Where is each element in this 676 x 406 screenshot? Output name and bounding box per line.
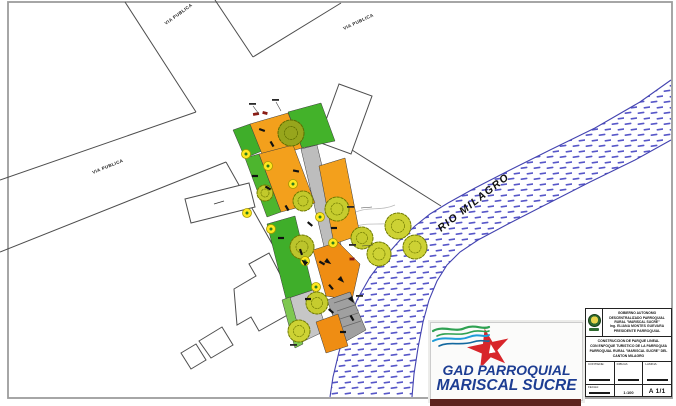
gad-emblem-cell (586, 309, 603, 336)
lamp-icon (264, 162, 273, 171)
tree-icon (288, 320, 310, 342)
scale-value: 1:100 (617, 390, 641, 395)
field-value-bar (618, 379, 639, 382)
project-line4: CANTON MILAGRO (586, 354, 671, 359)
field-lamina: LAMINA: (643, 362, 671, 385)
street-label-right: VIA PUBLICA (342, 12, 374, 31)
building-outline (181, 344, 206, 369)
street-label-left: VIA PUBLICA (92, 158, 125, 175)
field-contiene: CONTIENE: (586, 362, 614, 385)
tree-icon (290, 235, 314, 259)
lamp-icon (267, 225, 276, 234)
tree-icon (385, 213, 411, 239)
field-value-bar (647, 379, 668, 382)
waves-icon (431, 323, 493, 351)
lamp-icon (243, 209, 252, 218)
lamp-icon (329, 239, 338, 248)
gad-logo-box: GAD PARROQUIAL MARISCAL SUCRE (430, 322, 583, 401)
tree-icon (403, 235, 427, 259)
logo-text-line2: MARISCAL SUCRE (431, 377, 582, 395)
lamp-icon (312, 283, 321, 292)
tree-icon (367, 242, 391, 266)
field-escala: 1:100 (615, 385, 643, 396)
street-label-top: VIA PUBLICA (164, 2, 194, 26)
tree-icon (293, 191, 313, 211)
drawing-sheet: RIO MILAGRO VIA PUBLICA VIA PUBLICA VIA … (0, 0, 676, 406)
tree-icon (306, 292, 328, 314)
lamp-icon (242, 150, 251, 159)
tree-icon (325, 197, 349, 221)
title-block-fields: CONTIENE: FECHA: DIBUJA: 1:100 (586, 362, 671, 396)
logo-bottom-strip (430, 399, 581, 406)
park-river-path (313, 242, 360, 300)
lamp-icon (289, 180, 298, 189)
gad-emblem-banner (589, 328, 599, 331)
lamp-icon (316, 213, 325, 222)
title-block-header: GOBIERNO AUTONOMO DESCENTRALIZADO PARROQ… (586, 309, 671, 337)
gad-emblem-icon (588, 314, 601, 327)
field-dibuja: DIBUJA: (615, 362, 643, 385)
tree-icon (278, 120, 304, 146)
title-block: GOBIERNO AUTONOMO DESCENTRALIZADO PARROQ… (585, 308, 672, 397)
logo-text-line1: GAD PARROQUIAL (431, 362, 582, 378)
building-outline (199, 327, 233, 358)
sheet-number-cell: A 1/1 (643, 385, 671, 396)
field-fecha: FECHA: (586, 385, 614, 396)
field-value-bar (589, 392, 610, 394)
sheet-number: A 1/1 (645, 388, 669, 395)
project-title-cell: CONSTRUCCION DE PARQUE LINEAL CON ENFOQU… (586, 337, 671, 362)
field-value-bar (589, 379, 610, 382)
institution-line5: PRESIDENTE PARROQUIAL (603, 329, 671, 334)
